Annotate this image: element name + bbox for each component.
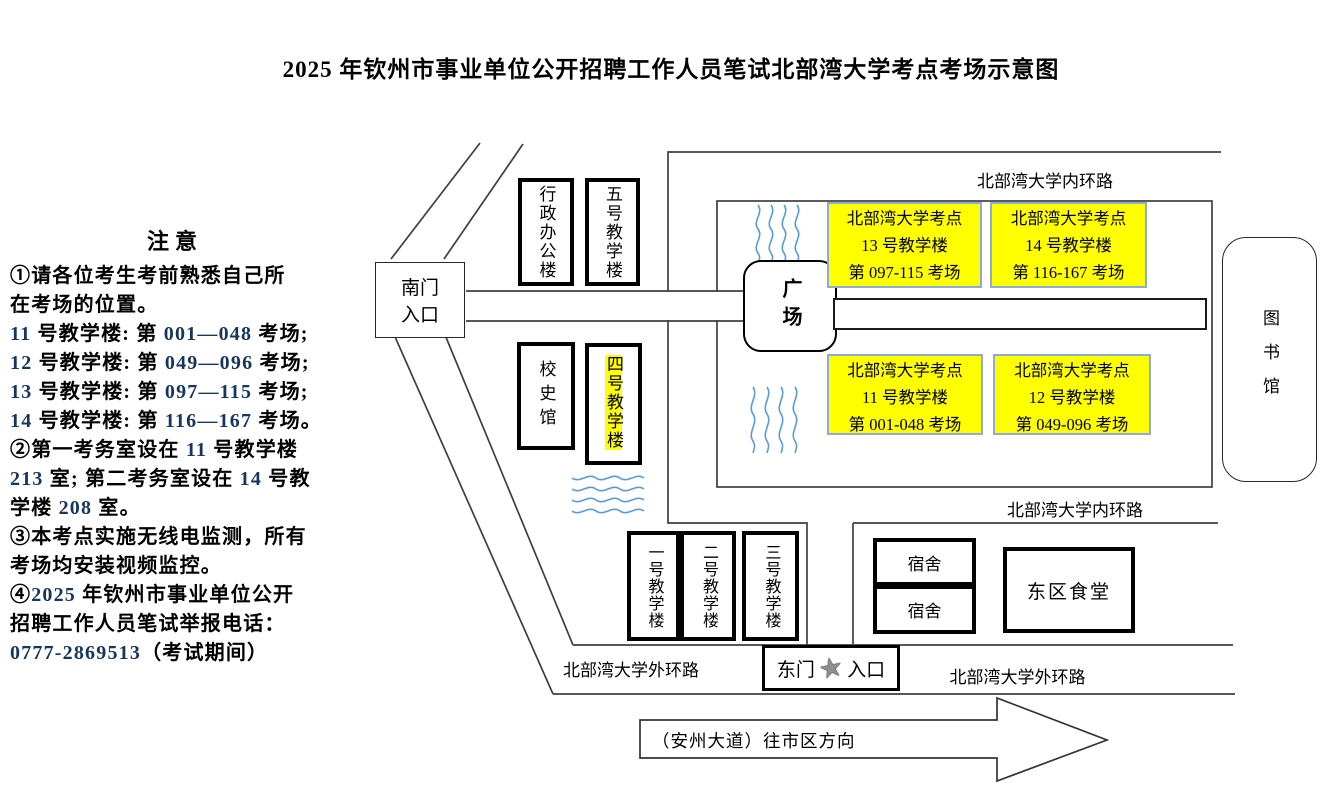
- notice-line: 学楼 208 室。: [10, 494, 368, 523]
- exam-site-map-page: 2025 年钦州市事业单位公开招聘工作人员笔试北部湾大学考点考场示意图 注意 ①…: [0, 0, 1342, 805]
- building-no4-teaching: 四号教学楼: [585, 343, 642, 465]
- central-walkway-rect: [833, 298, 1207, 330]
- exam-block-11-line3: 第 001-048 考场: [829, 411, 981, 438]
- notice-line: 考场均安装视频监控。: [10, 552, 368, 581]
- notice-lines: ①请各位考生考前熟悉自己所在考场的位置。11 号教学楼: 第 001—048 考…: [10, 262, 368, 668]
- building-east-canteen: 东区食堂: [1003, 547, 1135, 633]
- exam-block-13-line1: 北部湾大学考点: [829, 205, 980, 232]
- exam-block-11: 北部湾大学考点 11 号教学楼 第 001-048 考场: [827, 354, 983, 435]
- notice-line: ②第一考务室设在 11 号教学楼: [10, 436, 368, 465]
- exam-block-14-line3: 第 116-167 考场: [992, 259, 1145, 286]
- south-gate-road-band: [466, 292, 744, 320]
- road-label-inner-ring-top: 北部湾大学内环路: [960, 167, 1130, 192]
- south-road-upper-left-line: [391, 143, 480, 259]
- notice-line: ④2025 年钦州市事业单位公开: [10, 581, 368, 610]
- notice-line: 0777-2869513（考试期间）: [10, 639, 368, 668]
- exam-block-12-line2: 12 号教学楼: [995, 384, 1149, 411]
- notice-line: 13 号教学楼: 第 097—115 考场;: [10, 378, 368, 407]
- building-no5-teaching: 五号教学楼: [585, 178, 640, 286]
- building-admin-office: 行政办公楼: [518, 178, 574, 286]
- building-library: 图书馆: [1222, 237, 1317, 482]
- notice-line: ①请各位考生考前熟悉自己所: [10, 262, 368, 291]
- notice-heading: 注意: [10, 224, 340, 256]
- exam-block-11-line2: 11 号教学楼: [829, 384, 981, 411]
- east-gate-label-left: 东门: [777, 655, 815, 682]
- building-no2-teaching: 二号教学楼: [680, 531, 736, 641]
- fountain-waves-upper: [756, 205, 798, 262]
- road-label-outer-ring-left: 北部湾大学外环路: [556, 656, 706, 681]
- notice-panel: 注意 ①请各位考生考前熟悉自己所在考场的位置。11 号教学楼: 第 001—04…: [10, 224, 368, 668]
- star-icon: ★: [816, 652, 845, 683]
- exam-block-13: 北部湾大学考点 13 号教学楼 第 097-115 考场: [827, 202, 982, 288]
- dormitory-lower: 宿舍: [873, 585, 976, 634]
- south-gate-box: 南门 入口: [375, 262, 465, 338]
- building-no1-teaching: 一号教学楼: [627, 531, 680, 641]
- building-no5-label: 五号教学楼: [604, 185, 621, 280]
- plaza-box: 广场: [743, 260, 837, 352]
- exam-block-14-line2: 14 号教学楼: [992, 232, 1145, 259]
- plaza-label: 广场: [780, 278, 800, 334]
- notice-line: 14 号教学楼: 第 116—167 考场。: [10, 407, 368, 436]
- east-gate-box: 东门 ★ 入口: [762, 645, 900, 691]
- building-no3-teaching: 三号教学楼: [742, 531, 799, 641]
- notice-line: 在考场的位置。: [10, 291, 368, 320]
- road-label-outer-ring-right: 北部湾大学外环路: [945, 663, 1090, 688]
- dormitory-upper-label: 宿舍: [908, 550, 942, 575]
- building-school-history-hall: 校史馆: [517, 342, 575, 450]
- pond-waves: [572, 476, 644, 512]
- notice-line: ③本考点实施无线电监测，所有: [10, 523, 368, 552]
- exam-block-12-line3: 第 049-096 考场: [995, 411, 1149, 438]
- south-gate-label-line2: 入口: [401, 300, 439, 327]
- east-canteen-label: 东区食堂: [1027, 577, 1111, 604]
- dormitory-upper: 宿舍: [873, 538, 976, 586]
- library-label: 图书馆: [1261, 309, 1278, 411]
- direction-arrow-label: （安州大道）往市区方向: [652, 728, 856, 753]
- south-road-upper-right-line: [444, 144, 523, 259]
- building-admin-office-label: 行政办公楼: [538, 185, 555, 280]
- notice-line: 12 号教学楼: 第 049—096 考场;: [10, 349, 368, 378]
- building-history-label: 校史馆: [538, 360, 555, 432]
- exam-block-12-line1: 北部湾大学考点: [995, 357, 1149, 384]
- exam-block-11-line1: 北部湾大学考点: [829, 357, 981, 384]
- building-no1-label: 一号教学楼: [646, 544, 662, 629]
- east-gate-label-right: 入口: [847, 655, 885, 682]
- fountain-waves-lower: [751, 387, 796, 453]
- exam-block-13-line2: 13 号教学楼: [829, 232, 980, 259]
- dormitory-lower-label: 宿舍: [908, 597, 942, 622]
- notice-line: 11 号教学楼: 第 001—048 考场;: [10, 320, 368, 349]
- exam-block-14-line1: 北部湾大学考点: [992, 205, 1145, 232]
- notice-line: 213 室; 第二考务室设在 14 号教: [10, 465, 368, 494]
- exam-block-13-line3: 第 097-115 考场: [829, 259, 980, 286]
- page-title: 2025 年钦州市事业单位公开招聘工作人员笔试北部湾大学考点考场示意图: [40, 50, 1302, 84]
- building-no4-label-highlighted: 四号教学楼: [605, 355, 622, 450]
- road-label-inner-ring-bottom: 北部湾大学内环路: [990, 496, 1160, 521]
- south-gate-label-line1: 南门: [401, 273, 439, 300]
- building-no3-label: 三号教学楼: [763, 544, 779, 629]
- notice-line: 招聘工作人员笔试举报电话：: [10, 610, 368, 639]
- exam-block-14: 北部湾大学考点 14 号教学楼 第 116-167 考场: [990, 202, 1147, 288]
- building-no2-label: 二号教学楼: [700, 544, 716, 629]
- exam-block-12: 北部湾大学考点 12 号教学楼 第 049-096 考场: [993, 354, 1151, 435]
